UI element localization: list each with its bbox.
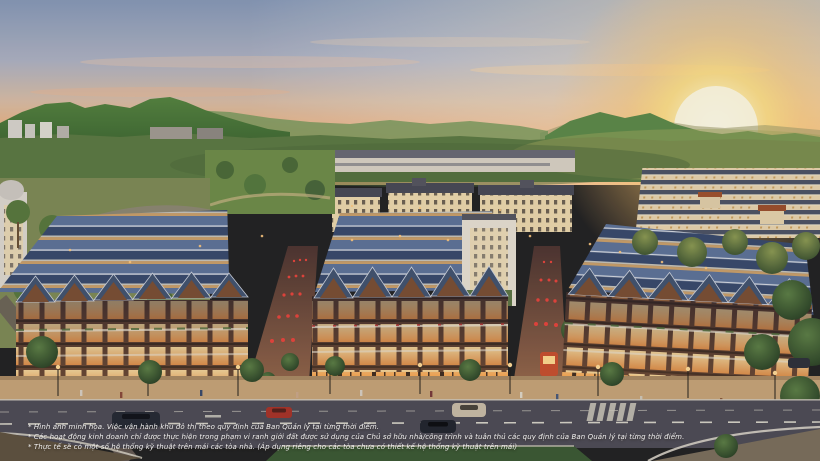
disclaimer-text: * Hình ảnh minh họa. Việc vận hành khu đ… bbox=[28, 422, 788, 453]
color-grade bbox=[0, 0, 820, 461]
disclaimer-line-2: * Các hoạt động kinh doanh chỉ được thực… bbox=[28, 432, 788, 442]
aerial-sunset-render: * Hình ảnh minh họa. Việc vận hành khu đ… bbox=[0, 0, 820, 461]
scene-canvas bbox=[0, 0, 820, 461]
disclaimer-line-1: * Hình ảnh minh họa. Việc vận hành khu đ… bbox=[28, 422, 788, 432]
disclaimer-line-3: * Thực tế sẽ có một số hệ thống kỹ thuật… bbox=[28, 442, 788, 452]
